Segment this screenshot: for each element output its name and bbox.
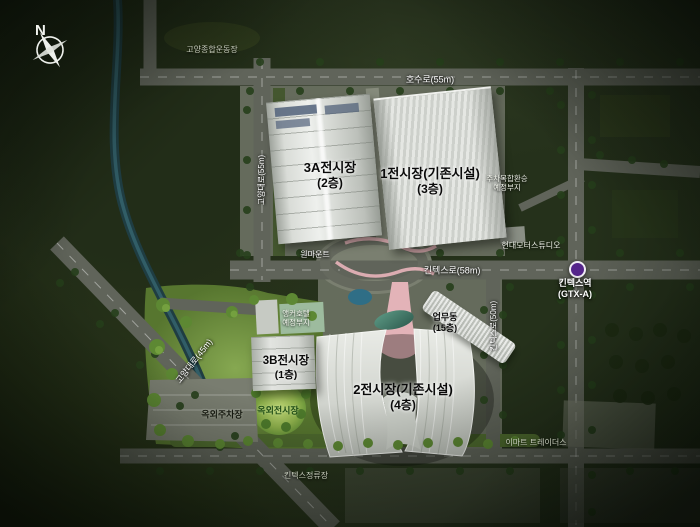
hall-name: 업무동 (433, 312, 458, 323)
hall-name: 2전시장(기존시설) (353, 382, 453, 398)
hall-name: 3A전시장 (304, 160, 357, 176)
label-parking-transfer-site: 주차복합환승 예정부지 (486, 174, 527, 192)
label-anchor-hotel-site: 앵커호텔 예정부지 (282, 309, 310, 327)
label-hyundai-motorstudio: 현대모터스튜디오 (502, 241, 561, 251)
label-line: 주차복합환승 (486, 174, 527, 183)
label-line: 예정부지 (493, 183, 521, 192)
compass-n-label: N (35, 22, 46, 39)
hall-floors: (2층) (304, 176, 357, 190)
road-east-branch (578, 164, 700, 172)
emart-building (562, 400, 656, 449)
pond (348, 289, 372, 305)
label-office-tower: 업무동 (15층) (433, 312, 458, 334)
road-label-kintex-ro-58: 킨텍스로(58m) (424, 266, 481, 277)
label-line: 앵커호텔 (282, 309, 310, 318)
hall-name: 1전시장(기존시설) (380, 166, 480, 182)
gtx-station-marker (569, 261, 586, 278)
solar-panel (275, 104, 318, 117)
road-label-goyang-daero-55: 고양대로(55m) (257, 155, 267, 205)
hall-floors: (3층) (380, 182, 480, 196)
label-hall-3a: 3A전시장 (2층) (304, 160, 357, 190)
hall-floors: (15층) (433, 323, 458, 334)
east-park-tree-grid (605, 323, 691, 405)
solar-panel (276, 118, 311, 129)
road-site-branch (160, 303, 262, 310)
label-emart: 이마트 트레이더스 (505, 438, 566, 448)
label-hall-2: 2전시장(기존시설) (4층) (353, 382, 453, 412)
hall-floors: (1층) (263, 369, 309, 382)
label-outdoor-parking: 옥외주차장 (201, 410, 242, 421)
label-stadium: 고양종합운동장 (186, 45, 238, 55)
hall-floors: (4층) (353, 398, 453, 412)
kintex-site-plan-map: N 호수로(55m) 고양대로(55m) 킨텍스로(58m) 킨텍스로(50m)… (0, 0, 700, 527)
label-gtx-station: 킨텍스역 (GTX-A) (558, 278, 592, 300)
station-line: (GTX-A) (558, 289, 592, 299)
road-label-hosu-ro: 호수로(55m) (406, 75, 454, 86)
label-outdoor-exhibition: 옥외전시장 (257, 406, 298, 417)
southeast-parking (560, 468, 700, 523)
label-line: 예정부지 (282, 318, 310, 327)
compass: N (12, 8, 92, 88)
station-name: 킨텍스역 (558, 278, 591, 288)
hall-name: 3B전시장 (263, 355, 309, 369)
terrain-graphics (0, 0, 700, 527)
anchor-hotel-site-building-a (255, 299, 279, 334)
south-parking (345, 468, 540, 523)
road-label-kintex-ro-50: 킨텍스로(50m) (489, 301, 499, 351)
label-hall-1: 1전시장(기존시설) (3층) (380, 166, 480, 196)
label-bus-stop: 킨텍스정류장 (284, 471, 328, 481)
label-onemount: 원마운트 (300, 250, 329, 260)
solar-panel (324, 103, 359, 115)
label-hall-3b: 3B전시장 (1층) (263, 355, 309, 381)
